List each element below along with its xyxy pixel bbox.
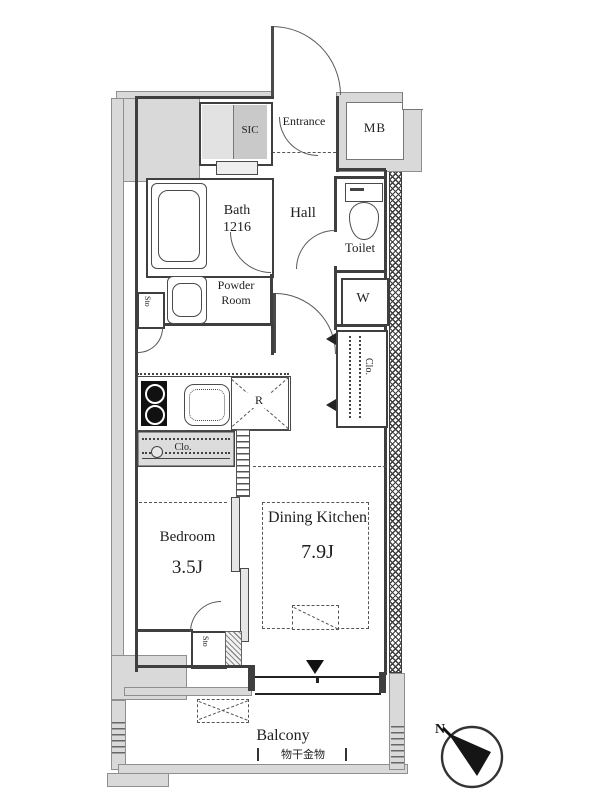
sink-inner — [189, 389, 225, 421]
toilet-wall-top — [334, 176, 386, 179]
balcony-label: Balcony — [238, 726, 328, 746]
wall-top — [135, 96, 274, 99]
wall-x272-low — [271, 325, 274, 355]
ceiling-line-dk-upper — [253, 466, 386, 467]
kitchen-upper-cabinet-line — [137, 373, 289, 375]
dk-size: 7.9J — [250, 540, 385, 564]
ps-shaft — [225, 631, 242, 667]
wall-mb-bottom — [336, 168, 386, 171]
closet-dk-dots-2 — [359, 336, 361, 418]
hall-label: Hall — [272, 204, 334, 222]
toilet-wall-bottom — [334, 270, 386, 273]
washer-label: W — [341, 290, 385, 307]
dk-name: Dining Kitchen — [250, 508, 385, 528]
balcony-divider-right — [391, 726, 404, 766]
storage-upper-label: Sto — [142, 296, 152, 307]
storage-lower-door-arc — [190, 601, 221, 632]
bedroom-name: Bedroom — [140, 528, 235, 546]
laundry-fixture-label: 物干金物 — [262, 748, 344, 761]
vanity-bowl — [172, 283, 202, 317]
balcony-top-band — [124, 687, 252, 696]
stove-burner-2 — [145, 405, 165, 425]
compass: N — [434, 719, 510, 795]
bedroom-bottom-wall — [135, 629, 193, 632]
powder-line2: Room — [221, 293, 250, 307]
stove-burner-1 — [145, 384, 165, 404]
closet-dk-door-mark-top — [326, 333, 336, 345]
powder-label: Powder Room — [200, 278, 272, 307]
closet-dk-box — [336, 330, 388, 428]
closet-dk-dots-1 — [349, 336, 351, 418]
window-post-left — [248, 665, 255, 691]
wall-entrance-right — [336, 96, 339, 172]
toilet-tank-handle — [350, 188, 364, 191]
structure-left-band — [111, 98, 124, 700]
entrance-door-arc — [272, 26, 341, 95]
main-opening-marker — [306, 660, 324, 674]
bath-name: Bath — [224, 203, 250, 218]
stove — [141, 381, 167, 426]
entrance-door-leaf — [271, 26, 274, 96]
laundry-tick-left — [257, 748, 259, 761]
compass-north-label: N — [435, 722, 445, 737]
toilet-label: Toilet — [334, 240, 386, 256]
ceiling-line-bedroom — [139, 502, 227, 503]
mb-label: MB — [346, 120, 404, 136]
closet-kitchen-dots-1 — [142, 438, 230, 440]
powder-line1: Powder — [218, 278, 255, 292]
mb-notch — [402, 92, 423, 110]
toilet-wall-left-lower — [334, 266, 337, 330]
entrance-inner-arc — [279, 117, 318, 156]
toilet-door-arc — [296, 230, 335, 269]
compass-needle — [448, 733, 491, 776]
south-wall — [135, 665, 251, 668]
laundry-tick-right — [345, 748, 347, 761]
fridge-label: R — [247, 393, 271, 408]
window-center-mark — [316, 676, 319, 683]
floorplan-canvas: MB Entrance SIC Bath 1216 Hall Toilet W — [0, 0, 600, 800]
storage-lower-label: Sto — [200, 636, 210, 647]
toilet-tank — [345, 183, 383, 202]
sic-label: SIC — [230, 124, 270, 137]
common-wall-hatch — [389, 170, 402, 673]
closet-kitchen-pipe-bracket — [151, 446, 163, 458]
closet-dk-door-mark-bottom — [326, 399, 336, 411]
closet-kitchen-pipe — [142, 458, 230, 459]
structure-bottom-lip — [107, 773, 169, 787]
structure-top-left-block — [111, 98, 200, 182]
toilet-bowl — [349, 202, 379, 240]
window-post-right — [379, 672, 386, 693]
closet-kitchen-label: Clo. — [163, 442, 203, 454]
sic-shelf — [216, 161, 258, 175]
balcony-divider-left — [112, 722, 125, 756]
storage-upper-door-arc — [138, 328, 163, 353]
toilet-wall-left-upper — [334, 176, 337, 232]
closet-dk-label: Clo. — [362, 358, 374, 375]
bathtub-inner — [158, 190, 200, 262]
sliding-door-track — [236, 429, 250, 497]
bedroom-size: 3.5J — [140, 556, 235, 579]
